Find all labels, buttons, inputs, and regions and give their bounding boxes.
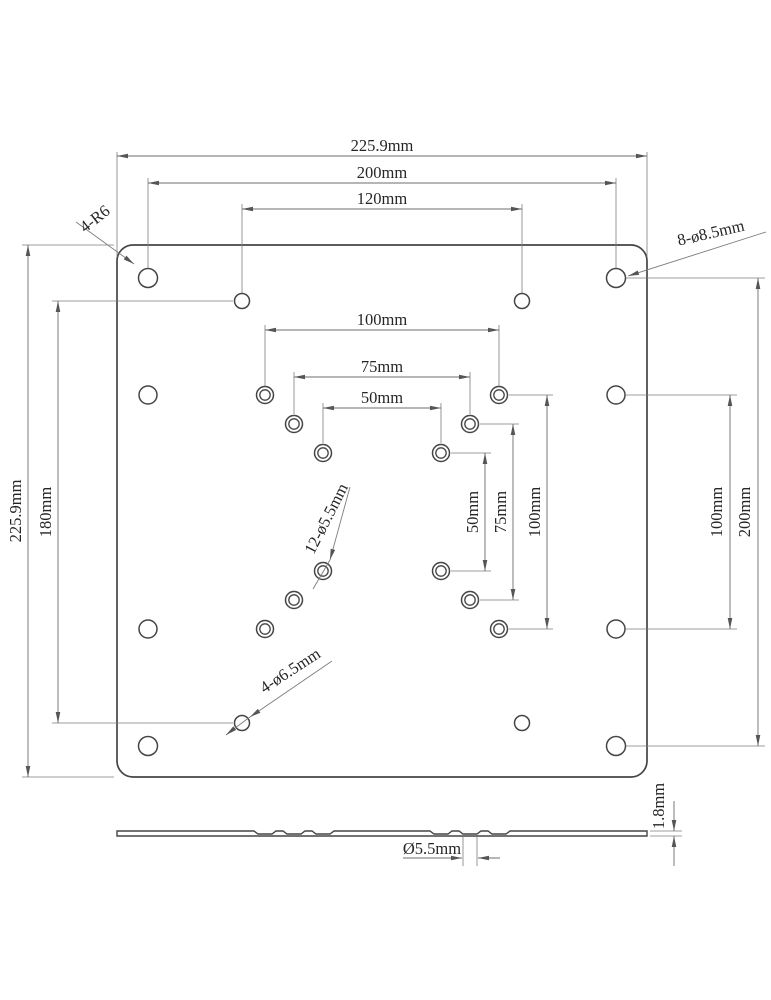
- outer-holes-group: [139, 269, 626, 756]
- note-outer-holes-label: 8-ø8.5mm: [675, 216, 746, 250]
- dim-right-200-label: 200mm: [735, 487, 754, 538]
- side-view: Ø5.5mm 1.8mm: [117, 783, 682, 866]
- dim-vesa-h-50: 50mm: [323, 388, 441, 443]
- note-adapter-holes: 4-ø6.5mm: [226, 644, 332, 735]
- outer-hole: [139, 386, 157, 404]
- dim-overall-width-label: 225.9mm: [351, 136, 414, 155]
- note-outer-holes: 8-ø8.5mm: [628, 216, 766, 276]
- dim-vesa-v-100-label: 100mm: [525, 487, 544, 538]
- dim-top-200: 200mm: [148, 163, 616, 268]
- vesa-hole: [462, 416, 479, 433]
- adapter-hole: [515, 716, 530, 731]
- dim-vesa-v-50-label: 50mm: [463, 491, 482, 533]
- dim-section-hole: Ø5.5mm: [403, 837, 500, 866]
- dim-top-120-label: 120mm: [357, 189, 408, 208]
- adapter-hole: [515, 294, 530, 309]
- dim-vesa-h-50-label: 50mm: [361, 388, 403, 407]
- vesa-plate-drawing: 225.9mm 200mm 120mm 225.9mm 180mm: [0, 0, 771, 1000]
- vesa-hole: [286, 592, 303, 609]
- note-corner-radius-label: 4-R6: [76, 201, 114, 236]
- dim-vesa-v-50: 50mm: [451, 453, 491, 571]
- dim-vesa-v-75: 75mm: [480, 424, 519, 600]
- outer-hole: [139, 737, 158, 756]
- note-corner-radius: 4-R6: [76, 201, 134, 264]
- dim-top-200-label: 200mm: [357, 163, 408, 182]
- outer-hole: [607, 737, 626, 756]
- outer-hole: [139, 269, 158, 288]
- outer-hole: [607, 386, 625, 404]
- dim-vesa-v-100: 100mm: [509, 395, 553, 629]
- dim-top-120: 120mm: [242, 189, 522, 293]
- note-vesa-holes: 12-ø5.5mm: [300, 480, 352, 589]
- vesa-hole: [286, 416, 303, 433]
- dim-thickness: 1.8mm: [649, 783, 682, 866]
- dim-right-100-label: 100mm: [707, 487, 726, 538]
- dim-vesa-v-75-label: 75mm: [491, 491, 510, 533]
- front-view: 225.9mm 200mm 120mm 225.9mm 180mm: [6, 136, 766, 777]
- vesa-hole: [257, 621, 274, 638]
- vesa-hole: [315, 563, 332, 580]
- dim-vesa-h-100-label: 100mm: [357, 310, 408, 329]
- dim-thickness-label: 1.8mm: [649, 783, 668, 829]
- technical-drawing-page: 225.9mm 200mm 120mm 225.9mm 180mm: [0, 0, 771, 1000]
- dim-overall-height-label: 225.9mm: [6, 479, 25, 542]
- dim-left-180-label: 180mm: [36, 487, 55, 538]
- vesa-hole: [491, 387, 508, 404]
- adapter-hole: [235, 294, 250, 309]
- dim-section-hole-label: Ø5.5mm: [403, 839, 461, 858]
- outer-hole: [607, 620, 625, 638]
- vesa-hole: [433, 563, 450, 580]
- vesa-hole: [433, 445, 450, 462]
- vesa-hole: [257, 387, 274, 404]
- vesa-hole: [462, 592, 479, 609]
- dim-left-180: 180mm: [36, 301, 233, 723]
- plate-section-profile: [117, 831, 647, 836]
- vesa-hole: [491, 621, 508, 638]
- dim-right-100: 100mm: [626, 395, 737, 629]
- outer-hole: [139, 620, 157, 638]
- dim-overall-height: 225.9mm: [6, 245, 114, 777]
- note-adapter-holes-label: 4-ø6.5mm: [256, 644, 324, 697]
- note-vesa-holes-label: 12-ø5.5mm: [300, 480, 352, 557]
- dim-vesa-h-75-label: 75mm: [361, 357, 403, 376]
- outer-hole: [607, 269, 626, 288]
- vesa-hole: [315, 445, 332, 462]
